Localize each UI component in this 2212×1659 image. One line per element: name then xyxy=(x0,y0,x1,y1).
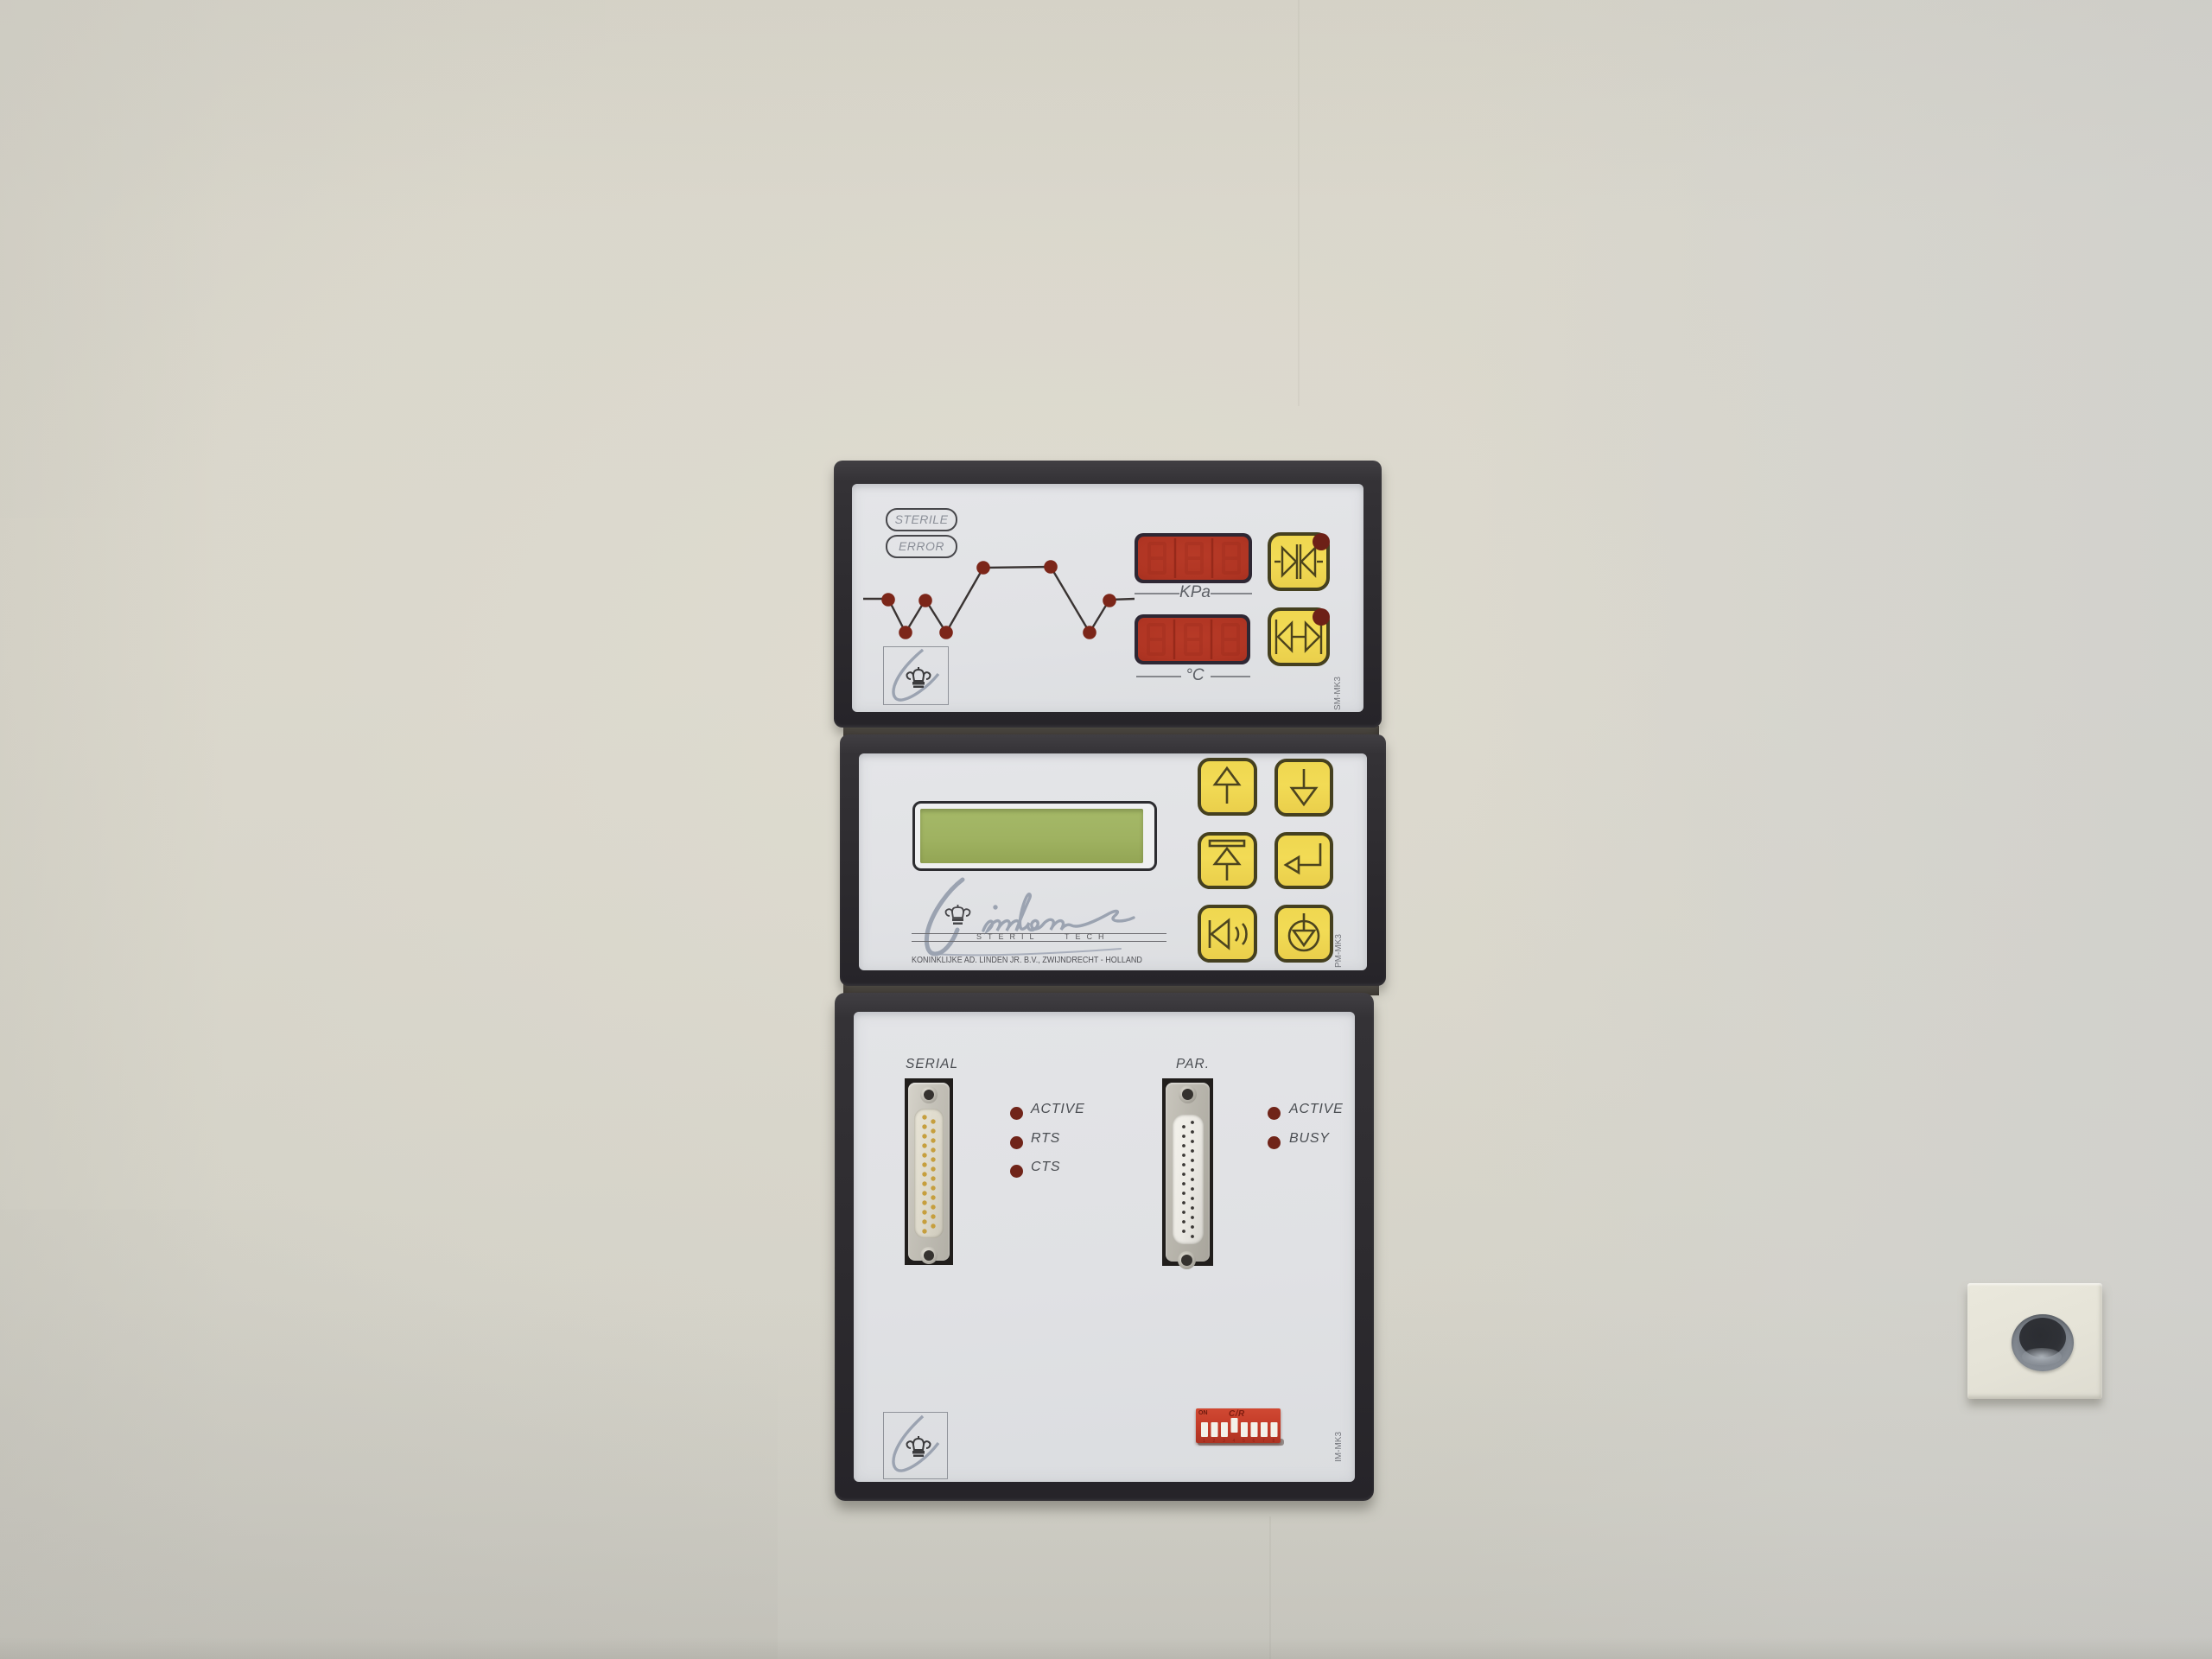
svg-text:7: 7 xyxy=(1262,1439,1265,1443)
svg-text:2: 2 xyxy=(1213,1439,1216,1443)
svg-text:5: 5 xyxy=(1243,1439,1245,1443)
svg-text:4: 4 xyxy=(1233,1439,1236,1443)
svg-text:8: 8 xyxy=(1273,1439,1275,1443)
svg-text:3: 3 xyxy=(1223,1439,1225,1443)
svg-text:1: 1 xyxy=(1203,1439,1205,1443)
svg-text:6: 6 xyxy=(1253,1439,1255,1443)
